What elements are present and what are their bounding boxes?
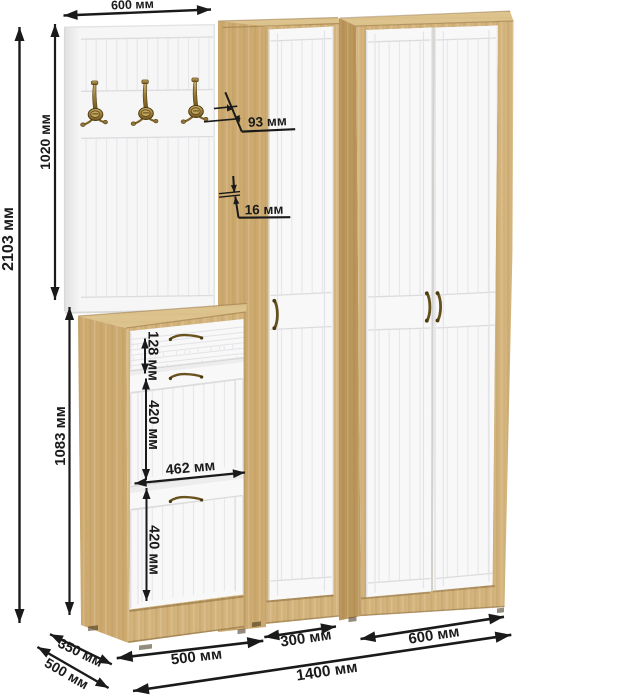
svg-text:1083 мм: 1083 мм xyxy=(52,406,69,466)
svg-text:300 мм: 300 мм xyxy=(279,626,332,650)
svg-text:1020 мм: 1020 мм xyxy=(37,114,53,170)
svg-text:2103 мм: 2103 мм xyxy=(0,207,17,271)
svg-text:1400 мм: 1400 мм xyxy=(295,659,359,685)
svg-text:420 мм: 420 мм xyxy=(146,525,162,575)
svg-text:500 мм: 500 мм xyxy=(170,645,223,668)
svg-text:600 мм: 600 мм xyxy=(111,0,154,13)
svg-text:420 мм: 420 мм xyxy=(145,400,161,450)
svg-text:93 мм: 93 мм xyxy=(248,113,287,130)
svg-text:128 мм: 128 мм xyxy=(145,331,161,381)
svg-text:16 мм: 16 мм xyxy=(244,202,283,218)
